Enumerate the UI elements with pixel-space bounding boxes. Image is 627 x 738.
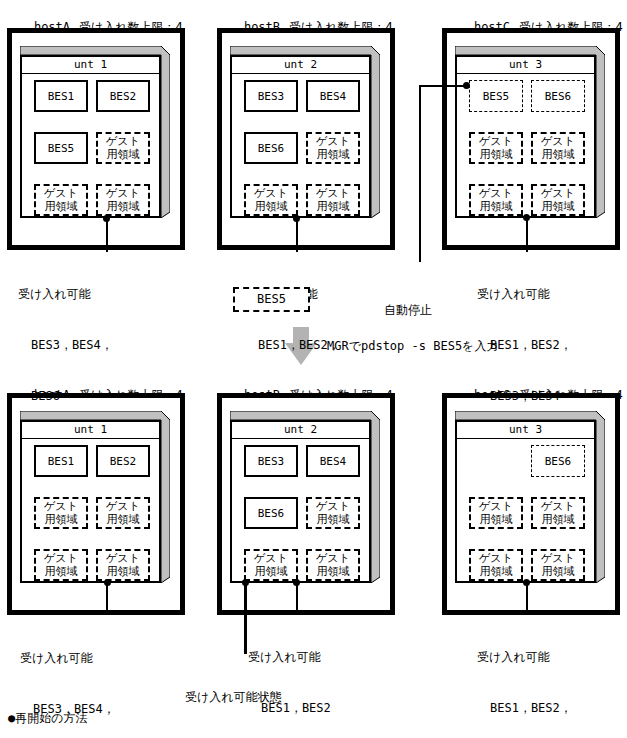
guest-area-cell: ゲスト用領域 bbox=[306, 184, 360, 216]
note-boxed-bes5: BES5 bbox=[233, 287, 310, 312]
note-acceptable-hostC-after: 受け入れ可能 BES1，BES2， BES3，BES4 bbox=[477, 615, 572, 738]
bes-server-cell: BES4 bbox=[306, 445, 360, 477]
unit-box-unt2-after: unt 2 BES3 BES4 BES6 ゲスト用領域 ゲスト用領域 ゲスト用領… bbox=[230, 420, 371, 583]
auto-stop-callout-dot bbox=[463, 82, 470, 89]
guest-area-cell: ゲスト用領域 bbox=[531, 549, 585, 581]
note-acceptable-hostB-before: 受け入れ可能 BES1，BES2， bbox=[245, 252, 340, 388]
guest-area-cell: ゲスト用領域 bbox=[34, 497, 88, 529]
guest-area-cell: ゲスト用領域 bbox=[469, 497, 523, 529]
unit-box-unt3-before: unt 3 BES5 BES6 ゲスト用領域 ゲスト用領域 ゲスト用領域 ゲスト… bbox=[455, 55, 596, 218]
guest-area-cell: ゲスト用領域 bbox=[34, 549, 88, 581]
connector-line bbox=[526, 582, 528, 615]
host-box-hostA-before: unt 1 BES1 BES2 BES5 ゲスト用領域 ゲスト用領域 ゲスト用領… bbox=[7, 28, 185, 250]
guest-area-cell: ゲスト用領域 bbox=[531, 132, 585, 164]
bes-server-cell: BES4 bbox=[306, 80, 360, 112]
note-acceptable-hostA-before: 受け入れ可能 BES3，BES4， BES6 bbox=[18, 252, 113, 439]
auto-stop-callout-line bbox=[420, 85, 467, 87]
bes-server-cell: BES2 bbox=[96, 445, 150, 477]
note-auto-stop: 自動停止 bbox=[384, 268, 432, 353]
guest-area-cell: ゲスト用領域 bbox=[244, 549, 298, 581]
guest-area-cell: ゲスト用領域 bbox=[96, 132, 150, 164]
connector-line bbox=[106, 582, 108, 615]
guest-area-cell: ゲスト用領域 bbox=[244, 184, 298, 216]
bes-server-cell-stopped: BES6 bbox=[531, 80, 585, 112]
bes-server-cell: BES6 bbox=[244, 497, 298, 529]
guest-area-cell: ゲスト用領域 bbox=[34, 184, 88, 216]
guest-area-cell: ゲスト用領域 bbox=[469, 549, 523, 581]
guest-area-cell: ゲスト用領域 bbox=[531, 497, 585, 529]
unit-label: unt 2 bbox=[232, 422, 369, 439]
host-box-hostC-before: unt 3 BES5 BES6 ゲスト用領域 ゲスト用領域 ゲスト用領域 ゲスト… bbox=[442, 28, 620, 250]
unit-label: unt 2 bbox=[232, 57, 369, 74]
unit-box-unt2-before: unt 2 BES3 BES4 BES6 ゲスト用領域 ゲスト用領域 ゲスト用領… bbox=[230, 55, 371, 218]
guest-area-cell: ゲスト用領域 bbox=[96, 549, 150, 581]
unit-box-unt3-after: unt 3 BES6 ゲスト用領域 ゲスト用領域 ゲスト用領域 ゲスト用領域 bbox=[455, 420, 596, 583]
guest-area-cell: ゲスト用領域 bbox=[306, 132, 360, 164]
guest-area-cell: ゲスト用領域 bbox=[469, 132, 523, 164]
bes-server-cell: BES2 bbox=[96, 80, 150, 112]
unit-box-unt1-before: unt 1 BES1 BES2 BES5 ゲスト用領域 ゲスト用領域 ゲスト用領… bbox=[20, 55, 161, 218]
connector-line bbox=[526, 217, 528, 252]
guest-area-cell: ゲスト用領域 bbox=[531, 184, 585, 216]
diagram-canvas: hostA受け入れ数上限：4 unt 1 BES1 BES2 BES5 ゲスト用… bbox=[0, 0, 627, 738]
bes-server-cell-stopped: BES5 bbox=[469, 80, 523, 112]
connector-line bbox=[296, 219, 298, 252]
server-grid: BES3 BES4 BES6 ゲスト用領域 ゲスト用領域 ゲスト用領域 bbox=[232, 74, 369, 216]
guest-area-cell: ゲスト用領域 bbox=[469, 184, 523, 216]
server-grid: BES1 BES2 ゲスト用領域 ゲスト用領域 ゲスト用領域 ゲスト用領域 bbox=[22, 439, 159, 581]
bes-server-cell: BES1 bbox=[34, 80, 88, 112]
bes-server-cell: BES5 bbox=[34, 132, 88, 164]
bes-server-cell: BES6 bbox=[244, 132, 298, 164]
guest-area-cell: ゲスト用領域 bbox=[96, 184, 150, 216]
release-callout-line bbox=[244, 582, 247, 654]
guest-area-cell: ゲスト用領域 bbox=[96, 497, 150, 529]
server-grid: BES6 ゲスト用領域 ゲスト用領域 ゲスト用領域 ゲスト用領域 bbox=[457, 439, 594, 581]
server-grid: BES3 BES4 BES6 ゲスト用領域 ゲスト用領域 ゲスト用領域 bbox=[232, 439, 369, 581]
bes-server-cell: BES3 bbox=[244, 80, 298, 112]
note-acceptable-hostC-before: 受け入れ可能 BES1，BES2， BES3，BES4 bbox=[477, 252, 572, 439]
auto-stop-callout-line bbox=[419, 85, 421, 262]
connector-line bbox=[296, 582, 298, 614]
unit-label: unt 3 bbox=[457, 57, 594, 74]
note-restart-method: ●再開始の方法 pdstart -sで サーバ起動 bbox=[8, 676, 106, 738]
bes-server-cell: BES3 bbox=[244, 445, 298, 477]
server-grid: BES1 BES2 BES5 ゲスト用領域 ゲスト用領域 ゲスト用領域 bbox=[22, 74, 159, 216]
bes-server-cell-stopped: BES6 bbox=[531, 445, 585, 477]
bes-server-cell: BES1 bbox=[34, 445, 88, 477]
connector-line bbox=[106, 219, 108, 252]
guest-area-cell: ゲスト用領域 bbox=[306, 549, 360, 581]
unit-box-unt1-after: unt 1 BES1 BES2 ゲスト用領域 ゲスト用領域 ゲスト用領域 ゲスト… bbox=[20, 420, 161, 583]
note-release-bes5: 受け入れ可能状態 の解除（BES5） bbox=[185, 655, 282, 738]
host-box-hostB-before: unt 2 BES3 BES4 BES6 ゲスト用領域 ゲスト用領域 ゲスト用領… bbox=[217, 28, 395, 250]
guest-area-cell: ゲスト用領域 bbox=[306, 497, 360, 529]
server-grid: BES5 BES6 ゲスト用領域 ゲスト用領域 ゲスト用領域 ゲスト用領域 bbox=[457, 74, 594, 216]
unit-label: unt 1 bbox=[22, 57, 159, 74]
